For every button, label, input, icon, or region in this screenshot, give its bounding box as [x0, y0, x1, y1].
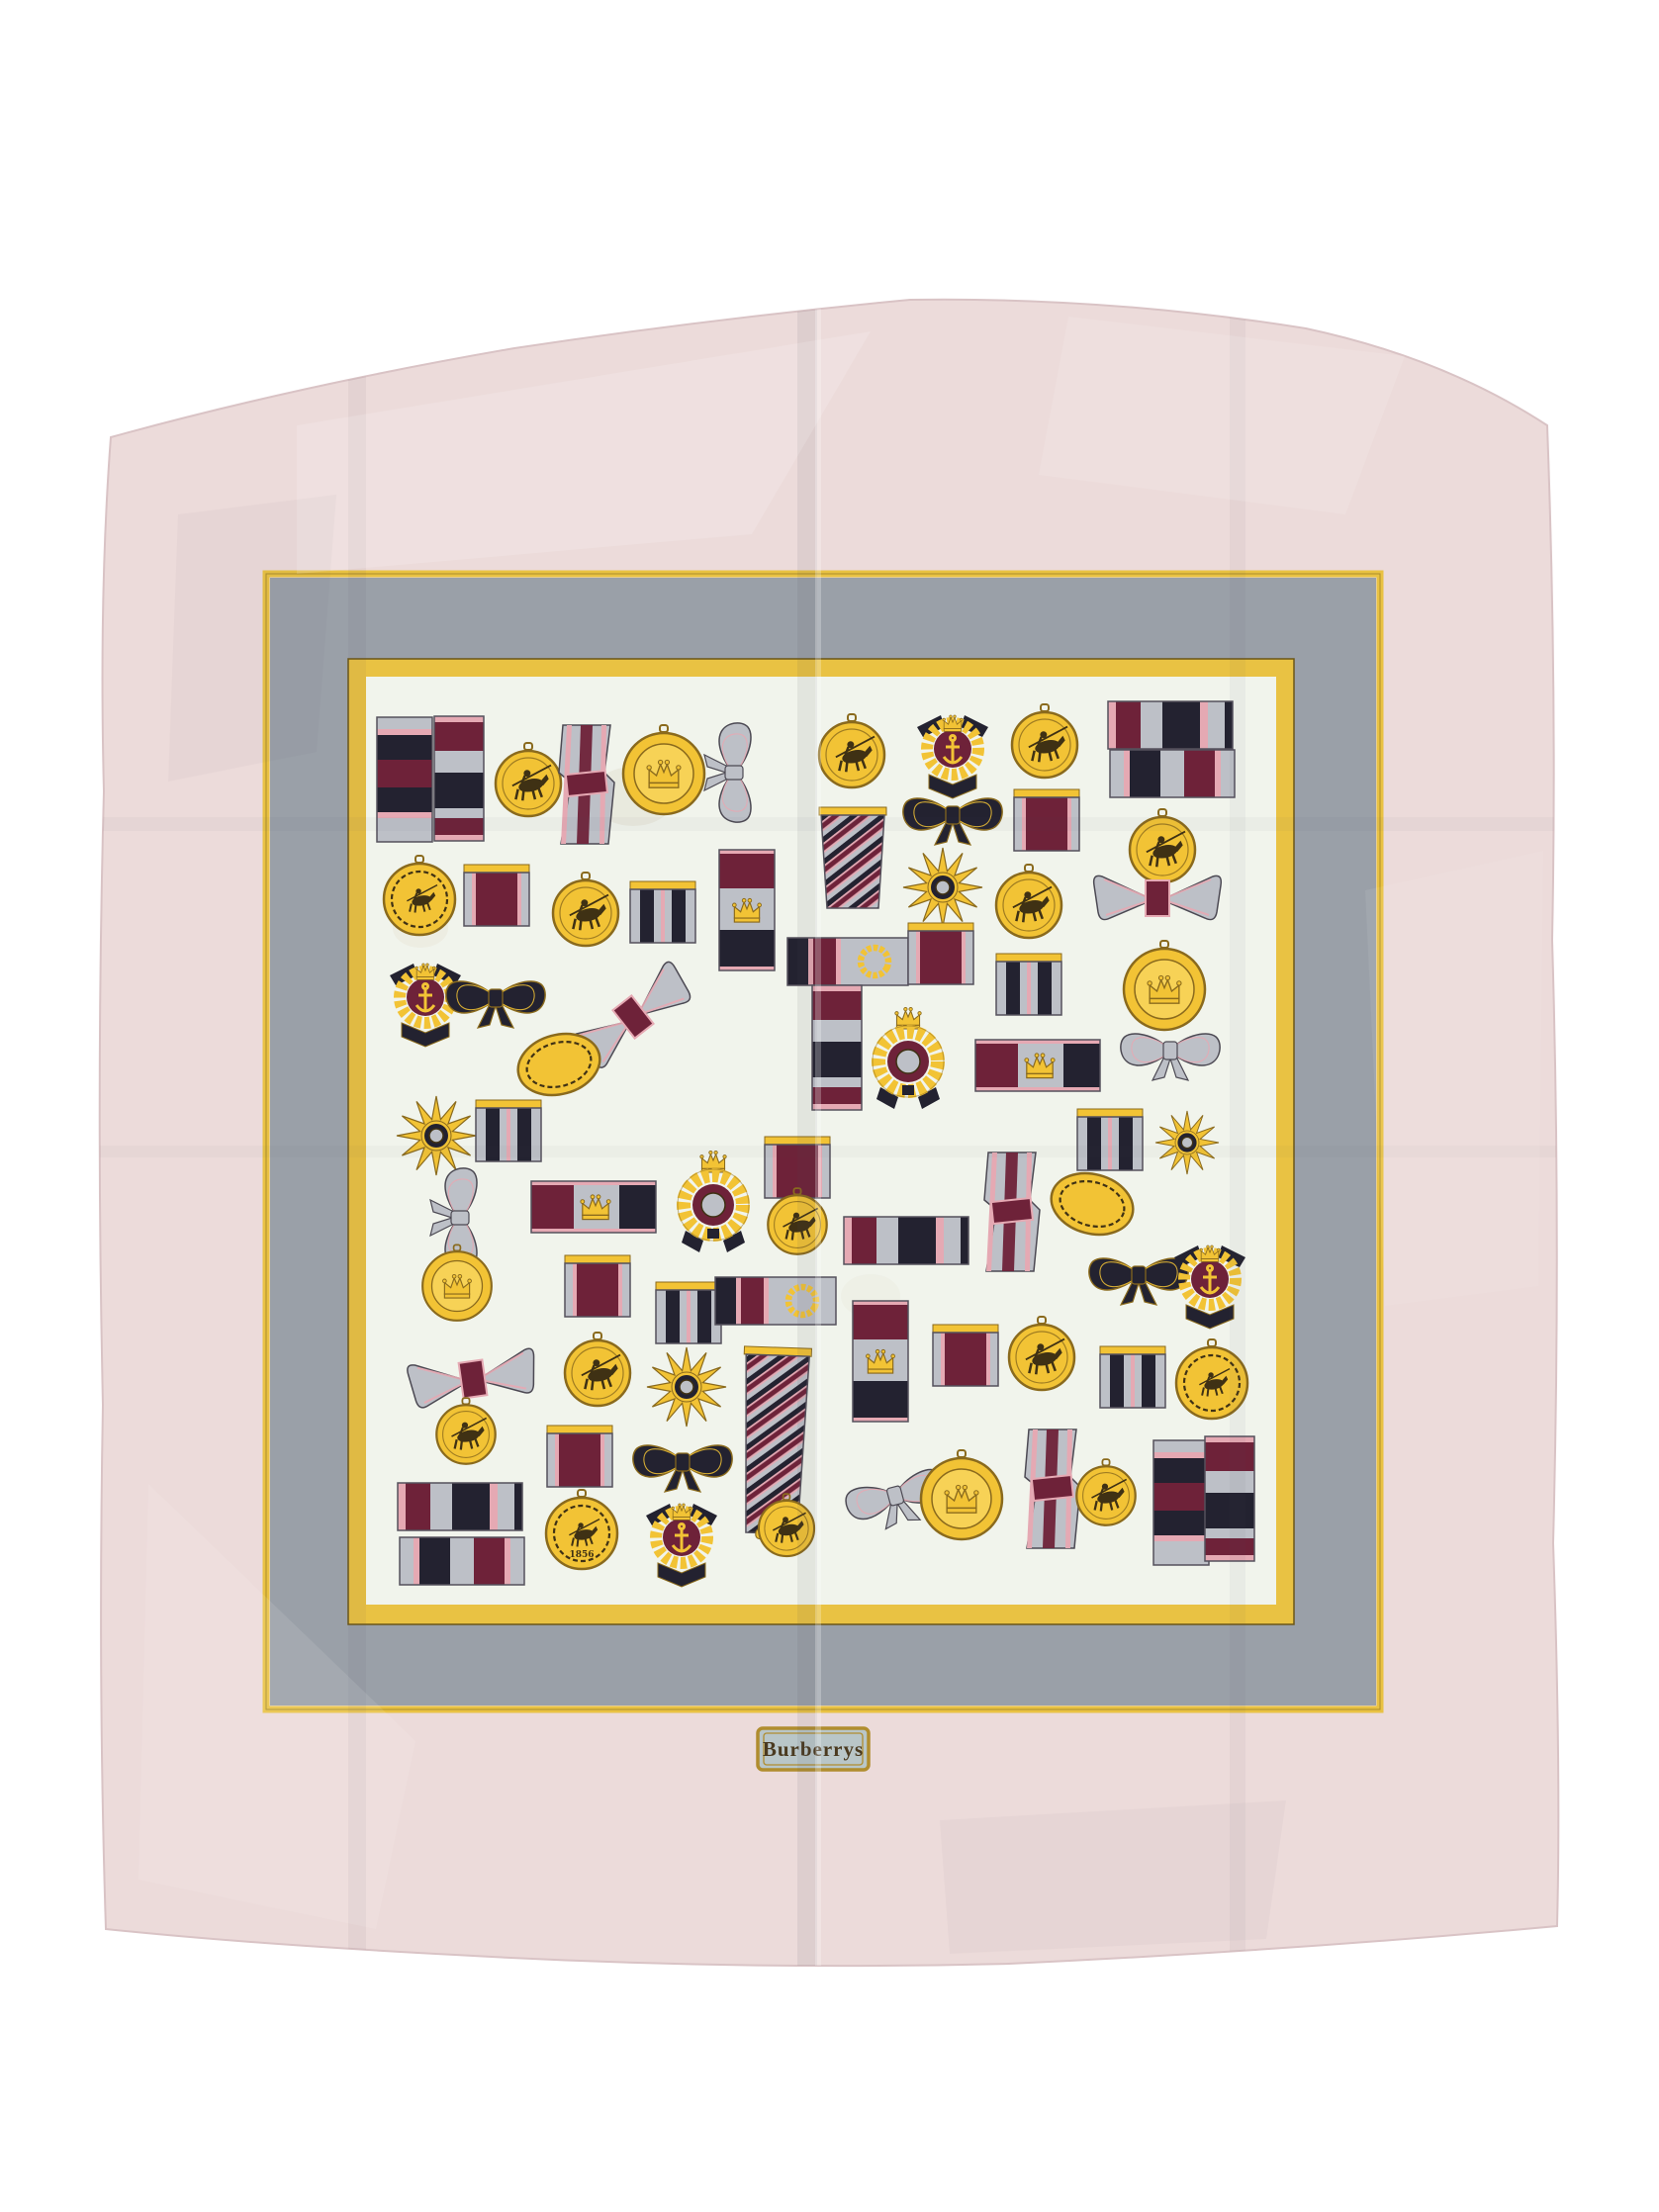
- scarf-illustration: 1856 Burberrys: [0, 0, 1659, 2212]
- motif-flag: [565, 1255, 630, 1317]
- scarf-fabric: 1856 Burberrys: [99, 295, 1563, 1972]
- motif-barvcrown: [719, 850, 775, 970]
- motif-barh2: [400, 1537, 524, 1585]
- motif-flag: [933, 1325, 998, 1386]
- motif-flag: [464, 865, 529, 926]
- motif-flag2: [996, 954, 1061, 1015]
- scarf-photo: 1856 Burberrys: [0, 0, 1659, 2212]
- motif-flag2: [630, 881, 695, 943]
- motif-barvcrown: [853, 1301, 908, 1422]
- motif-vribbon: [1025, 1429, 1080, 1548]
- motif-barhcrown: [531, 1181, 656, 1233]
- motif-barv: [1153, 1440, 1209, 1565]
- motif-barhcrown: [975, 1040, 1100, 1091]
- motif-barh2: [1110, 750, 1235, 797]
- motif-barh: [844, 1217, 968, 1264]
- motif-flag2: [656, 1282, 721, 1343]
- motif-flag: [908, 923, 973, 984]
- motif-flag: [547, 1426, 612, 1487]
- motif-flag2: [1077, 1109, 1143, 1170]
- motif-flag2: [1100, 1346, 1165, 1408]
- motif-bowwide: [1094, 876, 1222, 919]
- motif-barh: [1108, 701, 1233, 749]
- medal-inscription: 1856: [569, 1550, 594, 1560]
- motif-barh: [398, 1483, 522, 1530]
- motif-vribbon: [984, 1152, 1040, 1271]
